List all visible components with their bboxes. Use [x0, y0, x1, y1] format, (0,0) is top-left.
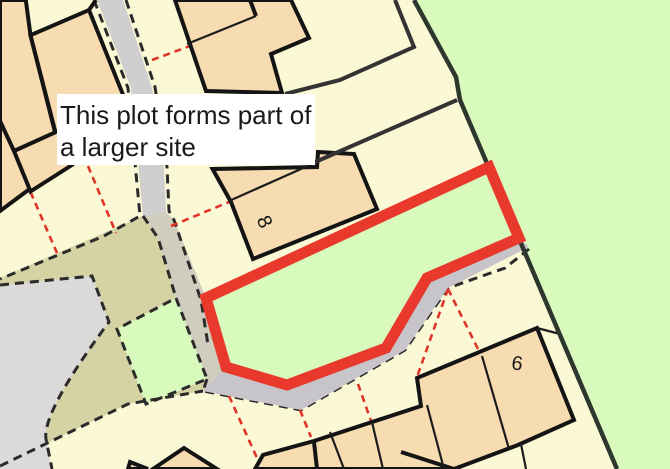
- svg-text:This plot forms part of: This plot forms part of: [60, 100, 312, 130]
- svg-text:a larger site: a larger site: [60, 132, 196, 162]
